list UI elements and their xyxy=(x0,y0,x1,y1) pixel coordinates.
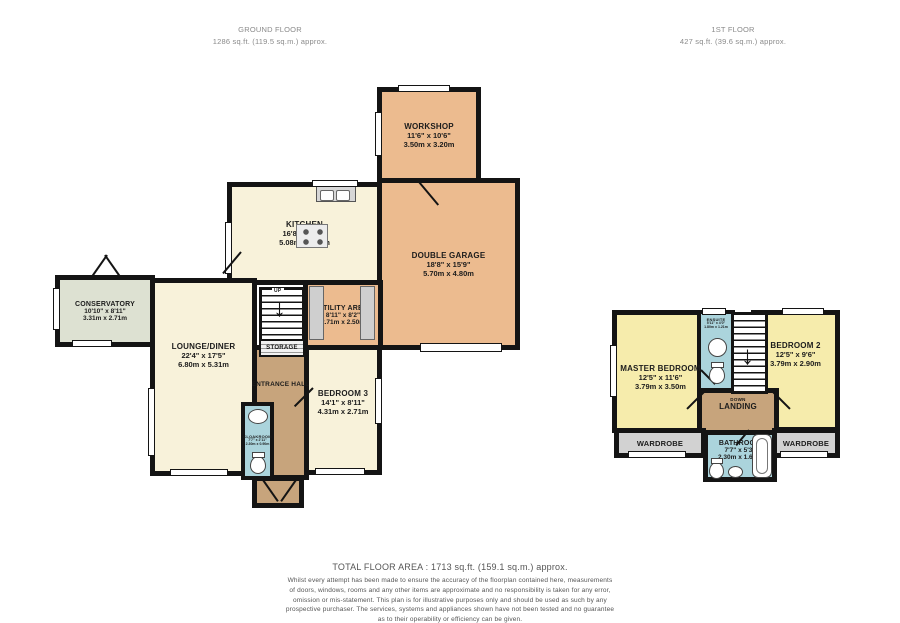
window xyxy=(398,85,450,92)
room-dims-ft: 10'10" x 8'11" xyxy=(75,308,135,315)
room-dims-m: 3.79m x 3.50m xyxy=(620,382,701,391)
total-floor-area: TOTAL FLOOR AREA : 1713 sq.ft. (159.1 sq… xyxy=(0,562,900,572)
room-name: DOUBLE GARAGE xyxy=(412,251,486,260)
room-bedroom-3: BEDROOM 3 14'1" x 8'11" 4.31m x 2.71m xyxy=(304,345,382,475)
shower-icon xyxy=(708,338,727,357)
room-workshop: WORKSHOP 11'6" x 10'6" 3.50m x 3.20m xyxy=(377,87,481,183)
first-floor-header: 1ST FLOOR 427 sq.ft. (39.6 sq.m.) approx… xyxy=(583,24,883,48)
storage-label: STORAGE xyxy=(266,345,298,351)
disclaimer-line: as to their operability or efficiency ca… xyxy=(0,615,900,623)
window xyxy=(375,112,382,156)
room-dims-ft: 12'5" x 9'6" xyxy=(770,350,821,359)
disclaimer: Whilst every attempt has been made to en… xyxy=(0,576,900,623)
toilet-icon xyxy=(709,366,725,384)
stairs-down-arrow-icon: ↓ xyxy=(273,294,286,320)
window xyxy=(628,451,686,458)
ground-floor-title: GROUND FLOOR xyxy=(120,24,420,36)
room-dims-ft: 18'8" x 15'9" xyxy=(412,260,486,269)
room-dims-m: 5.70m x 4.80m xyxy=(412,269,486,278)
room-name: CONSERVATORY xyxy=(75,301,135,308)
ground-floor-area: 1286 sq.ft. (119.5 sq.m.) approx. xyxy=(120,36,420,48)
ground-floor-header: GROUND FLOOR 1286 sq.ft. (119.5 sq.m.) a… xyxy=(120,24,420,48)
floorplan: GROUND FLOOR 1286 sq.ft. (119.5 sq.m.) a… xyxy=(0,0,900,623)
room-name: WARDROBE xyxy=(783,439,829,448)
disclaimer-line: Whilst every attempt has been made to en… xyxy=(0,576,900,586)
room-name: MASTER BEDROOM xyxy=(620,364,701,373)
room-name: WARDROBE xyxy=(637,439,683,448)
toilet-icon xyxy=(709,462,724,479)
disclaimer-line: prospective purchaser. The services, sys… xyxy=(0,605,900,615)
window xyxy=(780,451,828,458)
stove-icon xyxy=(296,224,328,248)
room-double-garage: DOUBLE GARAGE 18'8" x 15'9" 5.70m x 4.80… xyxy=(377,178,520,350)
room-name: BEDROOM 2 xyxy=(770,341,821,350)
window xyxy=(610,345,617,397)
stairs-up-label: UP xyxy=(272,288,284,294)
bathtub-icon xyxy=(752,434,772,478)
room-dims-m: 3.31m x 2.71m xyxy=(75,315,135,322)
room-name: WORKSHOP xyxy=(404,122,455,131)
garage-door xyxy=(420,343,502,352)
room-dims-m: 6.80m x 5.31m xyxy=(172,360,236,369)
window xyxy=(702,308,726,315)
room-dims-ft: 11'6" x 10'6" xyxy=(404,131,455,140)
first-floor-area: 427 sq.ft. (39.6 sq.m.) approx. xyxy=(583,36,883,48)
window xyxy=(53,288,60,330)
sink-icon xyxy=(728,466,743,478)
room-dims-m: 2.30m x 0.90m xyxy=(243,443,271,447)
toilet-icon xyxy=(250,456,266,474)
room-dims-m: 3.79m x 2.90m xyxy=(770,359,821,368)
window xyxy=(782,308,824,315)
room-dims-ft: 22'4" x 17'5" xyxy=(172,351,236,360)
appliance-icon xyxy=(309,286,324,340)
room-name: LANDING xyxy=(719,402,757,411)
room-landing: DOWN LANDING xyxy=(697,388,779,436)
room-master-bedroom: MASTER BEDROOM 12'5" x 11'6" 3.79m x 3.5… xyxy=(612,310,709,433)
window xyxy=(315,468,365,475)
disclaimer-line: omission or mis-statement. This plan is … xyxy=(0,596,900,606)
room-conservatory: CONSERVATORY 10'10" x 8'11" 3.31m x 2.71… xyxy=(55,275,155,347)
sink-icon xyxy=(248,409,268,424)
room-name: ENTRANCE HALL xyxy=(252,381,310,388)
room-dims-m: 1.80m x 1.21m xyxy=(704,326,728,330)
window xyxy=(312,180,358,187)
kitchen-sink-icon xyxy=(316,186,356,202)
appliance-icon xyxy=(360,286,375,340)
room-name: BEDROOM 3 xyxy=(318,389,369,398)
room-dims-m: 4.31m x 2.71m xyxy=(318,407,369,416)
window xyxy=(170,469,228,476)
room-dims-m: 3.50m x 3.20m xyxy=(404,140,455,149)
disclaimer-line: of doors, windows, rooms and any other i… xyxy=(0,586,900,596)
room-name: LOUNGE/DINER xyxy=(172,342,236,351)
room-dims-ft: 14'1" x 8'11" xyxy=(318,398,369,407)
first-floor-title: 1ST FLOOR xyxy=(583,24,883,36)
window xyxy=(375,378,382,424)
storage-area: STORAGE xyxy=(259,339,305,357)
room-dims-ft: 12'5" x 11'6" xyxy=(620,373,701,382)
stairs-down-arrow-icon: ↓ xyxy=(741,342,754,368)
window xyxy=(72,340,112,347)
window xyxy=(148,388,155,456)
